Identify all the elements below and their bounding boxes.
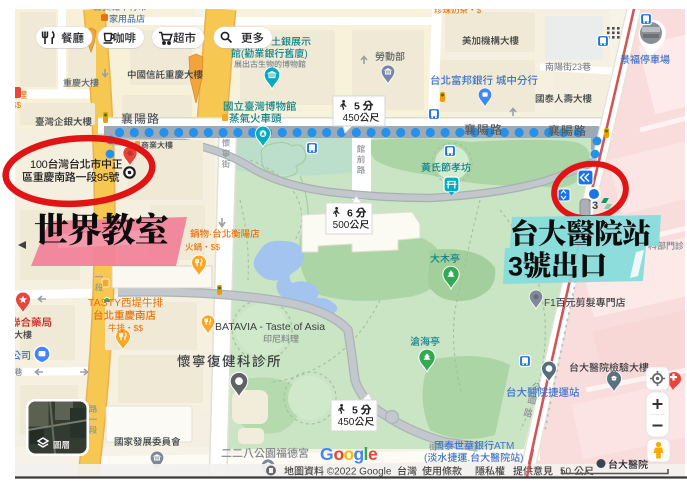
svg-text:襄陽路: 襄陽路 [121, 110, 160, 127]
svg-text:500公尺: 500公尺 [333, 216, 370, 231]
svg-text:F1百元剪髮專門店: F1百元剪髮專門店 [544, 294, 626, 309]
svg-text:襄陽路: 襄陽路 [548, 122, 587, 139]
svg-text:懷寧街: 懷寧街 [222, 137, 231, 170]
svg-text:臺灣企銀大樓: 臺灣企銀大樓 [35, 114, 93, 128]
svg-text:國家發展委員會: 國家發展委員會 [114, 434, 181, 448]
svg-text:鍋物·台北衡陽店: 鍋物·台北衡陽店 [190, 226, 260, 240]
svg-text:牛排・$$: 牛排・$$ [108, 322, 143, 334]
svg-text:台北富邦銀行 城中分行: 台北富邦銀行 城中分行 [430, 73, 538, 88]
svg-text:餐廳: 餐廳 [61, 30, 84, 46]
svg-text:G: G [320, 444, 333, 464]
svg-text:蒸氣火車頭: 蒸氣火車頭 [229, 111, 282, 126]
svg-text:南陽街23巷: 南陽街23巷 [545, 60, 591, 73]
svg-text:懷寧復健科診所: 懷寧復健科診所 [177, 350, 282, 370]
svg-text:3: 3 [592, 200, 598, 212]
svg-text:o: o [334, 444, 344, 464]
svg-text:景福停車場: 景福停車場 [620, 51, 670, 66]
svg-text:美加機構大樓: 美加機構大樓 [462, 33, 520, 47]
svg-text:黃氏節孝坊: 黃氏節孝坊 [421, 159, 471, 174]
svg-text:火鍋・$$: 火鍋・$$ [185, 241, 220, 253]
svg-text:台灣: 台灣 [397, 463, 417, 478]
svg-text:50 公尺: 50 公尺 [560, 463, 594, 478]
svg-text:滄海亭: 滄海亭 [410, 333, 440, 348]
svg-text:隱私權: 隱私權 [475, 463, 505, 478]
svg-text:g: g [354, 444, 364, 464]
svg-text:大樓: 大樓 [14, 328, 32, 341]
svg-text:超市: 超市 [173, 30, 196, 46]
svg-text:巷: 巷 [14, 366, 23, 378]
svg-text:3號出口: 3號出口 [508, 244, 607, 285]
svg-text:勞動部: 勞動部 [375, 48, 405, 63]
svg-text:重慶大樓: 重慶大樓 [63, 76, 99, 89]
svg-text:台大醫院檢驗大樓: 台大醫院檢驗大樓 [569, 359, 649, 374]
svg-text:世界教室: 世界教室 [34, 202, 168, 252]
svg-text:印尼料理: 印尼料理 [263, 332, 299, 345]
svg-text:國泰人壽大樓: 國泰人壽大樓 [535, 91, 593, 105]
svg-text:o: o [344, 444, 354, 464]
svg-text:台大醫院捷運站: 台大醫院捷運站 [506, 385, 580, 400]
svg-text:450公尺: 450公尺 [338, 413, 375, 428]
svg-text:更多: 更多 [241, 30, 264, 46]
svg-text:地圖資料 ©2022 Google: 地圖資料 ©2022 Google [284, 463, 392, 478]
svg-text:二二八公園福德宮: 二二八公園福德宮 [221, 445, 309, 461]
svg-text:家用品店: 家用品店 [109, 12, 145, 25]
svg-text:展出古生物的博物館: 展出古生物的博物館 [234, 59, 306, 70]
svg-text:襄陽路: 襄陽路 [464, 121, 503, 138]
svg-text:e: e [368, 444, 378, 464]
svg-text:街: 街 [429, 442, 437, 453]
svg-text:一段: 一段 [95, 271, 104, 294]
svg-text:台北重慶南店: 台北重慶南店 [93, 308, 156, 323]
svg-text:大木亭: 大木亭 [430, 250, 460, 265]
svg-text:區重慶南路一段95號: 區重慶南路一段95號 [22, 169, 120, 185]
svg-text:館前路: 館前路 [357, 143, 366, 176]
svg-text:台大醫院: 台大醫院 [608, 456, 648, 471]
svg-text:450公尺: 450公尺 [343, 109, 380, 124]
svg-text:路一段: 路一段 [89, 403, 98, 436]
svg-text:圖層: 圖層 [53, 439, 70, 451]
svg-text:提供意見: 提供意見 [513, 463, 553, 478]
svg-text:使用條款: 使用條款 [422, 463, 462, 478]
svg-text:中國信託重慶大樓: 中國信託重慶大樓 [127, 67, 204, 81]
svg-text:咖啡: 咖啡 [113, 30, 136, 46]
